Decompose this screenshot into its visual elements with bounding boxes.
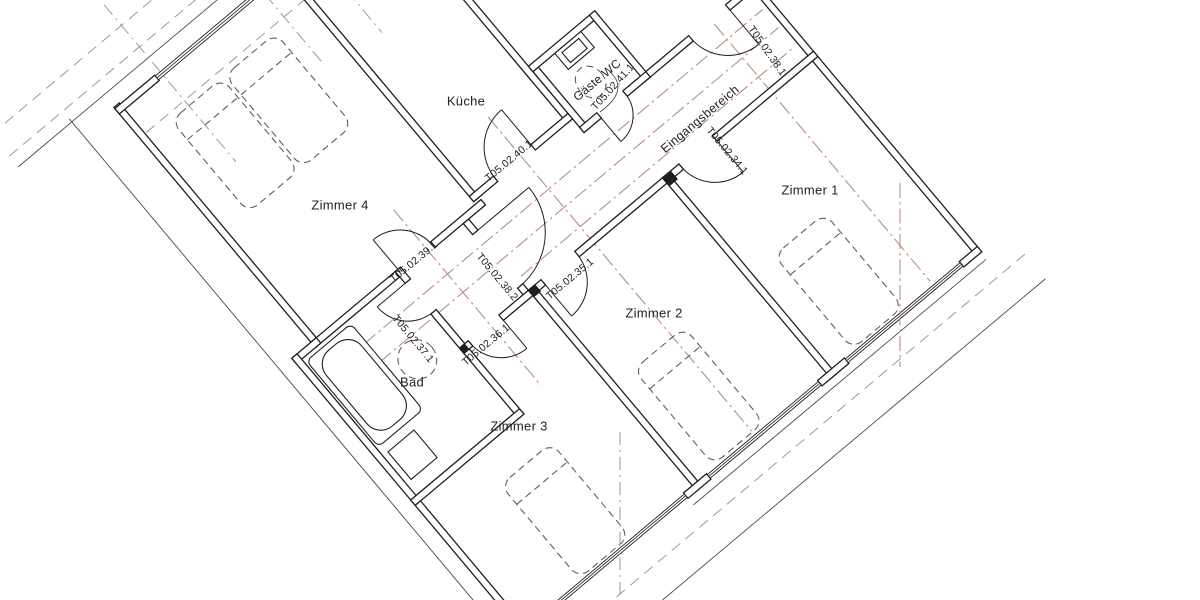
floor-plan-drawing bbox=[0, 0, 1200, 600]
room-label-zimmer-2: Zimmer 2 bbox=[625, 306, 682, 321]
overlay-lines bbox=[600, 72, 900, 600]
room-label-zimmer-3: Zimmer 3 bbox=[490, 419, 547, 434]
room-label-kueche: Küche bbox=[447, 94, 485, 109]
room-label-bad: Bad bbox=[400, 375, 424, 390]
room-label-zimmer-4: Zimmer 4 bbox=[311, 198, 368, 213]
floor-plan-page: Zimmer 4 Küche Gäste WC Eingangsbereich … bbox=[0, 0, 1200, 600]
room-label-zimmer-1: Zimmer 1 bbox=[781, 183, 838, 198]
